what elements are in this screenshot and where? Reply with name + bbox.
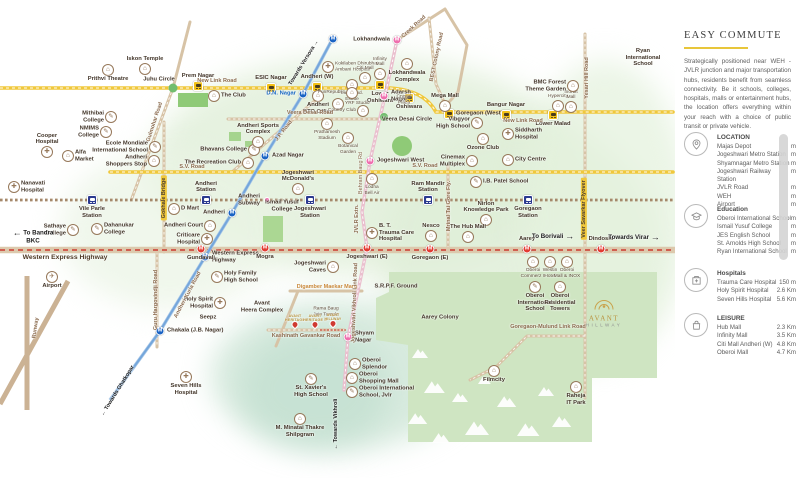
- item-distance: 4.8 Km: [777, 341, 796, 349]
- oberoi-international-school-jvlr-icon: ✎: [346, 386, 358, 398]
- map-label: Gundavali: [187, 255, 215, 262]
- railway-station-icon: [423, 195, 433, 205]
- easy-commute-panel: EASY COMMUTE Strategically positioned ne…: [675, 0, 800, 478]
- map-label: NirlonKnowledge Park: [463, 201, 508, 214]
- mega-mall-icon: ⌂: [439, 100, 451, 112]
- map-label: CinemaxMultiplex: [440, 154, 465, 167]
- map-label: Towards Virar →: [608, 232, 659, 242]
- map-label: Veera Desai Circle: [382, 117, 432, 124]
- item-label: Holy Spirit Hospital: [717, 287, 768, 295]
- map-label: Citi Mall: [356, 66, 373, 72]
- section-title: LOCATION: [717, 134, 750, 141]
- map-label: To Borivali →: [532, 231, 574, 241]
- title-underline: [684, 47, 748, 49]
- railway-station-icon: [87, 195, 97, 205]
- metro-station-icon: M: [366, 157, 375, 166]
- list-item-infinity-mall: Infinity Mall3.5 Km: [717, 332, 796, 340]
- map-label: City Centre: [515, 157, 546, 164]
- metro-station-icon: M: [523, 245, 532, 254]
- metro-station-yellow-icon: [375, 80, 385, 90]
- section-rows: Hub Mall2.3 KmInfinity Mall3.5 KmCiti Ma…: [717, 324, 796, 357]
- holy-family-high-school-icon: ✎: [211, 271, 223, 283]
- map-label: AVANTHERITAGE: [285, 314, 305, 322]
- filmcity-icon: ⌂: [488, 365, 500, 377]
- item-label: Majas Depot: [717, 143, 751, 151]
- metro-station-icon: M: [299, 90, 308, 99]
- map-label: OberoiShopping Mall: [359, 371, 399, 384]
- map-markers-layer: Vile ParleStationAndheriStationJogeshwar…: [0, 0, 675, 478]
- item-distance: m: [791, 143, 796, 151]
- map-label: ← Towards Vikhroli: [333, 399, 339, 450]
- panel-title: EASY COMMUTE: [684, 30, 800, 41]
- oberoi-residential-towers-icon: ⌂: [554, 281, 566, 293]
- map-label: Andheri Kurla Road: [173, 271, 203, 320]
- raheja-it-park-icon: ⌂: [570, 381, 582, 393]
- map-label: Juhu Circle: [143, 77, 175, 84]
- infinity-mall-icon: ⌂: [374, 68, 386, 80]
- map-label: AndheriSubway: [238, 193, 260, 206]
- ozone-club-icon: ⌂: [477, 133, 489, 145]
- item-label: JVLR Road: [717, 184, 748, 192]
- map-label: Western ExpressHighway: [212, 250, 259, 263]
- metro-station-icon: M: [261, 152, 270, 161]
- map-label: The Hub Mall: [450, 224, 486, 231]
- prithvi-theatre-icon: ⌂: [102, 64, 114, 76]
- map-label: Western Express Highway: [23, 254, 108, 262]
- leisure-icon: [684, 313, 708, 337]
- item-label: Ryan International School: [717, 248, 787, 256]
- map-label: CriticareHospital: [176, 232, 200, 245]
- map-label: BotanicalGarden: [338, 144, 358, 155]
- item-label: Seven Hills Hospital: [717, 296, 771, 304]
- map-label: Ozone Club: [467, 145, 499, 152]
- siddharth-hospital-icon: ✚: [502, 128, 514, 140]
- map-label: JogeshwariMcDonald's: [282, 170, 314, 183]
- map-label: ← To BandraBKC: [13, 227, 54, 244]
- i-b-patel-school-icon: ✎: [470, 176, 482, 188]
- botanical-garden-icon: ⌂: [342, 132, 354, 144]
- logo-arch-icon: [591, 298, 617, 310]
- map-label: LodhaBell Air: [365, 185, 380, 196]
- andheri-court-icon: ⌂: [204, 220, 216, 232]
- map-label: Ram MandirStation: [411, 181, 444, 194]
- map-label: Veera Desai Road: [287, 110, 333, 116]
- map-label: Mogra: [256, 254, 273, 261]
- item-distance: m: [791, 215, 796, 223]
- item-distance: m: [791, 151, 796, 159]
- m-minatai-thakre-shilpgram-icon: ⌂: [294, 413, 306, 425]
- map-label: Ecole MondialeInternational School: [92, 140, 148, 153]
- item-distance: m: [791, 184, 796, 192]
- holy-spirit-hospital-icon: ✚: [214, 297, 226, 309]
- westin-hotel-icon: ⌂: [544, 256, 556, 268]
- map-label: NanavatiHospital: [21, 180, 45, 193]
- map-label: PrathameshStadium: [314, 130, 340, 141]
- alfa-market-icon: ⌂: [62, 150, 74, 162]
- map-label: AVANTHERITAGE II: [303, 314, 327, 322]
- map-label: DahanukarCollege: [104, 222, 134, 235]
- map-label: OberoiResidentialTowers: [545, 293, 576, 313]
- map-label: ESIC Nagar: [255, 75, 287, 82]
- oberoi-shopping-mall-icon: ⌂: [346, 372, 358, 384]
- list-item-hub-mall: Hub Mall2.3 Km: [717, 324, 796, 332]
- lokhandwala-complex-icon: ⌂: [401, 58, 413, 70]
- country-club-icon: ⌂: [357, 105, 369, 117]
- map-label: AndheriShoppers Stop: [106, 154, 147, 167]
- map-label: Prithvi Theatre: [88, 76, 129, 83]
- section-title: Hospitals: [717, 270, 746, 277]
- map-label: ← Towards Ghatkopar: [100, 365, 136, 418]
- map-label: Veer Savarkar Flyover: [581, 178, 587, 240]
- item-distance: 5.6 Km: [777, 296, 796, 304]
- item-distance: m: [791, 168, 796, 185]
- map-label: Iskon Temple: [127, 56, 164, 63]
- map-label: Oberoi InternationalSchool, Jvlr: [359, 385, 414, 398]
- map-label: JogeshwariCaves: [294, 260, 326, 273]
- item-label: Ismail Yusuf College: [717, 223, 772, 231]
- lodha-bell-air-icon: ⌂: [366, 173, 378, 185]
- item-distance: 150 m: [779, 279, 796, 287]
- map-label: Holy FamilyHigh School: [224, 270, 258, 283]
- list-item-citi-mall-andheri-w: Citi Mall Andheri (W)4.8 Km: [717, 341, 796, 349]
- map-label: M. Minatai ThakreShilpgram: [276, 425, 325, 438]
- education-icon: [684, 204, 708, 228]
- list-item-seven-hills-hospital: Seven Hills Hospital5.6 Km: [717, 296, 796, 304]
- easy-commute-map-page: { "panel": { "title": "EASY COMMUTE", "b…: [0, 0, 800, 478]
- circle-junction-icon: [169, 84, 178, 93]
- map-label: Chakala (J.B. Nagar): [167, 328, 223, 335]
- list-item-oberoi-mall: Oberoi Mall4.7 Km: [717, 349, 796, 357]
- map-label: SiddharthHospital: [515, 127, 542, 140]
- item-distance: m: [791, 160, 796, 168]
- map-label: Jogeshwari (E): [346, 254, 387, 261]
- map-label: Kashinath Gavankar Road: [272, 333, 340, 339]
- st-xavier-s-high-school-icon: ✎: [305, 373, 317, 385]
- section-title: LEISURE: [717, 315, 745, 322]
- map-label: Lokhandwala: [353, 37, 390, 44]
- metro-station-icon: M: [228, 209, 237, 218]
- map-label: Ismail YusufCollege: [265, 199, 299, 212]
- map-label: Andheri: [203, 210, 225, 217]
- item-label: St. Arnolds High School: [717, 240, 781, 248]
- map-label: AlfaMarket: [75, 149, 94, 162]
- item-label: Infinity Mall: [717, 332, 747, 340]
- map-label: OberoiSplendor: [362, 357, 387, 370]
- andheri-shoppers-stop-icon: ⌂: [148, 155, 160, 167]
- oberoi-mall-inox-icon: ⌂: [561, 256, 573, 268]
- map-label: CrystalPlaza: [397, 94, 412, 105]
- funrepublic-icon: ⌂: [346, 87, 358, 99]
- oberoi-commerz-ii-icon: ⌂: [527, 256, 539, 268]
- section-rows: Trauma Care Hospital150 mHoly Spirit Hos…: [717, 279, 796, 304]
- list-item-trauma-care-hospital: Trauma Care Hospital150 m: [717, 279, 796, 287]
- map-label: AndheriStation: [195, 181, 217, 194]
- map-label: OberoiCommerz II: [521, 268, 546, 279]
- metro-station-icon: M: [393, 36, 402, 45]
- map-label: Azad Nagar: [272, 153, 304, 160]
- panel-body-text: Strategically positioned near WEH - JVLR…: [684, 57, 791, 131]
- map-label: Andheri SportsComplex: [237, 123, 279, 136]
- map-label: Gulmohar Road: [146, 101, 165, 142]
- item-label: WEH: [717, 193, 731, 201]
- prathamesh-stadium-icon: ⌂: [321, 118, 333, 130]
- map-label: Mega Mall: [431, 93, 459, 100]
- railway-station-icon: [201, 195, 211, 205]
- map-label: Nesco: [422, 223, 439, 230]
- hypercity-icon: ⌂: [552, 100, 564, 112]
- map-label: RyanInternationalSchool: [626, 48, 661, 68]
- item-distance: 3.5 Km: [777, 332, 796, 340]
- map-label: BEST Colony Road: [429, 32, 446, 82]
- map-label: Runway: [31, 317, 40, 339]
- city-centre-icon: ⌂: [502, 154, 514, 166]
- map-label: Bangur Nagar: [487, 102, 525, 109]
- the-club-icon: ⌂: [208, 90, 220, 102]
- item-label: Citi Mall Andheri (W): [717, 341, 773, 349]
- map-label: New Link Road: [503, 118, 542, 124]
- avant-hillway-logo: AVANTHILLWAY: [574, 297, 634, 328]
- map-label: JVLR Extn.: [354, 204, 360, 233]
- the-recreation-club-icon: ⌂: [242, 157, 254, 169]
- map-label: LokhandwalaComplex: [389, 70, 426, 83]
- vibgyor-high-school-icon: ✎: [471, 117, 483, 129]
- map-label: Filmcity: [483, 377, 505, 384]
- item-distance: m: [791, 193, 796, 201]
- map-label: Andheri (W): [301, 74, 334, 81]
- map-label: Gokhale Bridge: [161, 176, 167, 221]
- nmims-college-icon: ✎: [100, 126, 112, 138]
- seven-hills-hospital-icon: ✚: [180, 371, 192, 383]
- item-distance: 4.7 Km: [777, 349, 796, 357]
- citi-mall-icon: ⌂: [359, 72, 371, 84]
- metro-station-icon: M: [426, 245, 435, 254]
- kokilaben-dhirubhai-ambani-hospital-icon: ✚: [322, 61, 334, 73]
- map-label: S.V. Road: [412, 163, 437, 169]
- andheri-sports-complex-icon: ⌂: [252, 136, 264, 148]
- item-distance: m: [791, 240, 796, 248]
- sathaye-college-icon: ✎: [67, 224, 79, 236]
- metro-station-icon: M: [261, 244, 270, 253]
- criticare-hospital-icon: ✚: [201, 233, 213, 245]
- metro-station-icon: M: [197, 245, 206, 254]
- map-label: BMC ForestTheme Garden: [525, 79, 566, 92]
- item-distance: m: [791, 248, 796, 256]
- map-label: GoregaonStation: [514, 206, 541, 219]
- map-label: Andheri Court: [164, 223, 203, 230]
- map-label: Airport: [42, 283, 61, 290]
- map-label: MithibaiCollege: [82, 110, 104, 123]
- map-label: Seven HillsHospital: [171, 383, 202, 396]
- iskon-temple-icon: ⌂: [139, 63, 151, 75]
- map-label: InfinityMall: [373, 57, 387, 68]
- map-label: Bhavans College: [200, 147, 247, 154]
- dahanukar-college-icon: ✎: [91, 223, 103, 235]
- location-pin-icon: [684, 132, 708, 156]
- item-label: Oberoi Mall: [717, 349, 748, 357]
- cinemax-multiplex-icon: ⌂: [466, 155, 478, 167]
- ecole-mondiale-international-school-icon: ✎: [149, 141, 161, 153]
- map-label: B. T.Trauma CareHospital: [379, 223, 414, 243]
- the-hub-mall-icon: ⌂: [462, 231, 474, 243]
- map-label: NMIMSCollege: [78, 125, 99, 138]
- map-label: OberoiMall & INOX: [554, 268, 580, 279]
- item-label: JES English School: [717, 232, 770, 240]
- map-label: St. Xavier'sHigh School: [294, 385, 328, 398]
- map-label: VibgyorHigh School: [436, 116, 470, 129]
- jogeshwari-caves-icon: ⌂: [327, 261, 339, 273]
- inorbit-mall-icon: ⌂: [565, 101, 577, 113]
- map-label: The Club: [221, 93, 246, 100]
- map-label: Seepz: [200, 315, 217, 322]
- item-distance: m: [791, 232, 796, 240]
- railway-station-icon: [523, 195, 533, 205]
- map-label: Digamber Maekar Marg: [297, 284, 358, 290]
- item-distance: 2.3 Km: [777, 324, 796, 332]
- map-label: Creek Road: [401, 14, 428, 39]
- map-label: New Link Road: [197, 78, 236, 84]
- item-distance: m: [791, 223, 796, 231]
- bmc-forest-theme-garden-icon: ⌂: [567, 80, 579, 92]
- oberoi-international-school-icon: ✎: [529, 281, 541, 293]
- panel-scrollbar[interactable]: [779, 134, 788, 260]
- item-distance: m: [791, 201, 796, 209]
- map-label: I.B. Patel School: [483, 179, 528, 186]
- nanavati-hospital-icon: ✚: [8, 181, 20, 193]
- map-label: Vile ParleStation: [79, 206, 105, 219]
- map-label: Guru Hargovindji Road: [153, 270, 159, 330]
- metro-station-icon: M: [363, 244, 372, 253]
- map-label: D.N. Nagar: [266, 91, 296, 98]
- item-label: Jogeshwari Metro Station: [717, 151, 786, 159]
- mithibai-college-icon: ✎: [105, 111, 117, 123]
- map-label: ShyamNagar: [355, 330, 374, 343]
- map-label: RahejaIT Park: [566, 393, 585, 406]
- metro-station-icon: M: [380, 92, 389, 101]
- item-distance: 2.6 Km: [777, 287, 796, 295]
- oberoi-splendor-icon: ⌂: [349, 358, 361, 370]
- map-label: AvantHeera Complex: [241, 300, 283, 313]
- map-label: Behram Baug Rd: [358, 152, 364, 194]
- d-mart-icon: ⌂: [168, 203, 180, 215]
- map-label: S.V. Road: [179, 164, 204, 170]
- section-title: Education: [717, 206, 748, 213]
- item-label: Hub Mall: [717, 324, 741, 332]
- map-label: D Mart: [181, 206, 199, 213]
- railway-station-icon: [305, 195, 315, 205]
- airport-icon: ✈: [46, 271, 58, 283]
- metro-station-icon: M: [329, 35, 338, 44]
- map-label: FunRepublic: [318, 90, 345, 96]
- map-label: Aarey Colony: [421, 315, 458, 322]
- metro-station-icon: M: [597, 245, 606, 254]
- list-item-holy-spirit-hospital: Holy Spirit Hospital2.6 Km: [717, 287, 796, 295]
- b-t-trauma-care-hospital-icon: ✚: [366, 227, 378, 239]
- hospital-icon: [684, 268, 708, 292]
- map-label: S.R.P.F. Ground: [374, 284, 417, 291]
- nesco-icon: ⌂: [425, 230, 437, 242]
- cooper-hospital-icon: ✚: [41, 146, 53, 158]
- map-label: Goregaon (E): [412, 255, 449, 262]
- map-label: Mrinal Tai Gore Fly.: [446, 181, 452, 231]
- item-label: Trauma Care Hospital: [717, 279, 776, 287]
- map-label: Yesari Hill Road: [584, 57, 590, 99]
- jogeshwari-mcdonald-s-icon: ⌂: [292, 183, 304, 195]
- map-label: CooperHospital: [36, 133, 59, 146]
- map-label: AVANTHILLWAY: [324, 313, 341, 321]
